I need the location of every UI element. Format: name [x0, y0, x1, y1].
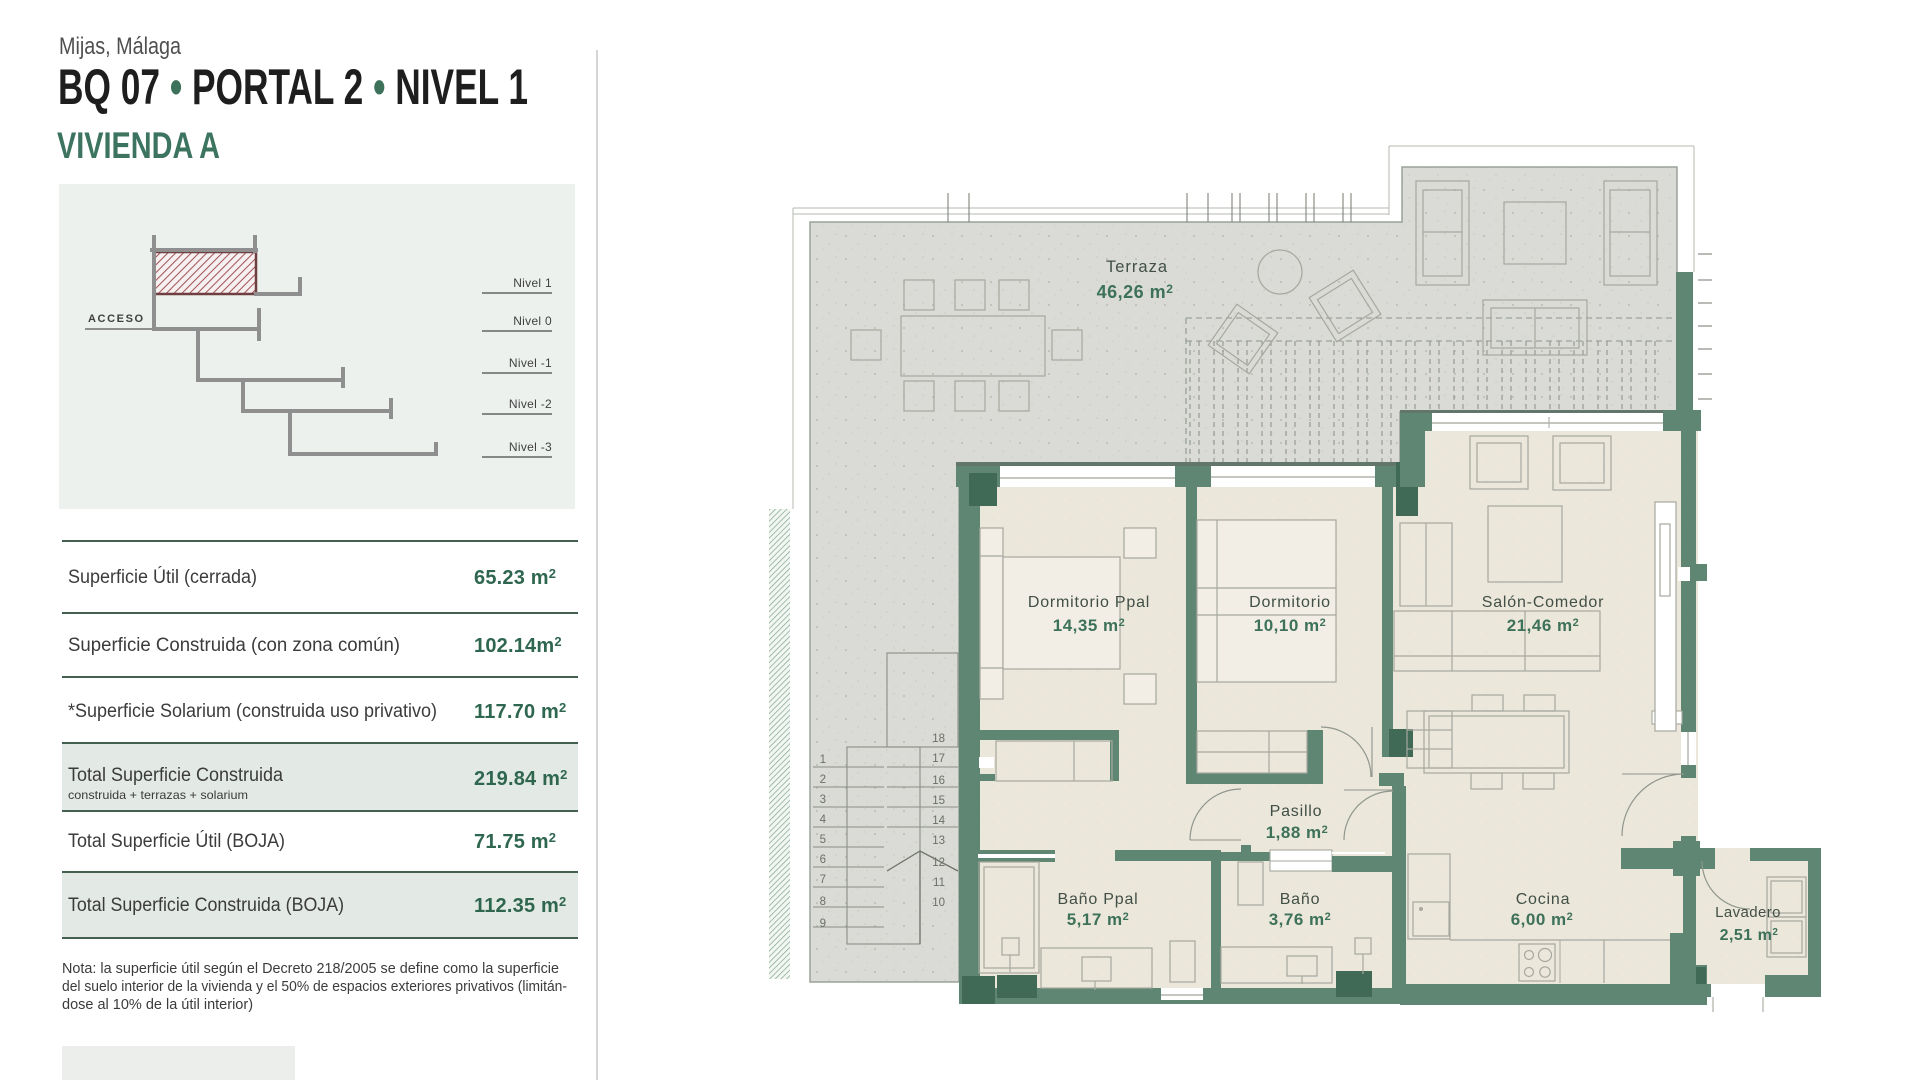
svg-text:12: 12	[932, 857, 945, 869]
svg-text:Total Superficie Construida (B: Total Superficie Construida (BOJA)	[68, 895, 344, 916]
svg-text:Nivel -3: Nivel -3	[509, 440, 552, 454]
svg-text:15: 15	[932, 795, 945, 807]
svg-text:6,00 m2: 6,00 m2	[1511, 910, 1574, 929]
svg-text:Terraza: Terraza	[1106, 258, 1168, 276]
svg-text:6: 6	[820, 854, 826, 866]
svg-text:3,76 m2: 3,76 m2	[1269, 910, 1332, 929]
svg-text:1: 1	[820, 754, 826, 766]
svg-text:21,46 m2: 21,46 m2	[1507, 616, 1580, 635]
svg-text:Nota: la superficie útil según: Nota: la superficie útil según el Decret…	[62, 961, 559, 977]
svg-text:8: 8	[820, 896, 826, 908]
svg-text:BQ 07 • PORTAL 2 • NIVEL 1: BQ 07 • PORTAL 2 • NIVEL 1	[58, 59, 528, 115]
svg-text:13: 13	[932, 835, 945, 847]
svg-text:Baño: Baño	[1280, 891, 1321, 908]
svg-text:9: 9	[820, 918, 826, 930]
svg-text:Dormitorio Ppal: Dormitorio Ppal	[1028, 594, 1150, 611]
svg-text:Salón-Comedor: Salón-Comedor	[1482, 594, 1604, 611]
svg-text:1,88 m2: 1,88 m2	[1266, 823, 1329, 842]
svg-text:5: 5	[820, 834, 826, 846]
svg-text:ACCESO: ACCESO	[88, 313, 145, 325]
svg-text:Total Superficie Construida: Total Superficie Construida	[68, 765, 283, 786]
svg-text:71.75 m2: 71.75 m2	[474, 830, 556, 853]
svg-text:7: 7	[820, 874, 826, 886]
svg-text:219.84 m2: 219.84 m2	[474, 767, 568, 790]
svg-text:3: 3	[820, 794, 826, 806]
svg-text:construida + terrazas + solari: construida + terrazas + solarium	[68, 788, 248, 802]
svg-text:del suelo interior de la vivie: del suelo interior de la vivienda y el 5…	[62, 979, 567, 995]
svg-text:Nivel -2: Nivel -2	[509, 397, 552, 411]
svg-text:46,26 m2: 46,26 m2	[1097, 282, 1174, 302]
svg-text:Nivel -1: Nivel -1	[509, 356, 552, 370]
svg-text:18: 18	[932, 733, 945, 745]
svg-text:VIVIENDA A: VIVIENDA A	[57, 125, 220, 166]
svg-text:Nivel 0: Nivel 0	[513, 314, 552, 328]
svg-text:2: 2	[820, 774, 826, 786]
svg-text:5,17 m2: 5,17 m2	[1067, 910, 1130, 929]
svg-text:Pasillo: Pasillo	[1270, 803, 1323, 820]
svg-text:dose al 10% de la útil interio: dose al 10% de la útil interior)	[62, 997, 253, 1013]
svg-text:4: 4	[820, 814, 827, 826]
svg-text:Superficie Construida (con zon: Superficie Construida (con zona común)	[68, 635, 400, 656]
svg-text:102.14m2: 102.14m2	[474, 634, 562, 657]
svg-text:117.70 m2: 117.70 m2	[474, 700, 566, 723]
svg-text:Baño Ppal: Baño Ppal	[1057, 891, 1138, 908]
svg-text:14,35 m2: 14,35 m2	[1053, 616, 1126, 635]
svg-text:Dormitorio: Dormitorio	[1249, 594, 1331, 611]
svg-text:16: 16	[932, 775, 945, 787]
svg-text:Cocina: Cocina	[1516, 891, 1571, 908]
svg-text:Nivel 1: Nivel 1	[513, 276, 552, 290]
svg-text:112.35 m2: 112.35 m2	[474, 894, 566, 917]
svg-text:14: 14	[932, 815, 945, 827]
svg-text:Superficie Útil (cerrada): Superficie Útil (cerrada)	[68, 566, 257, 588]
svg-text:11: 11	[933, 877, 945, 889]
svg-text:2,51 m2: 2,51 m2	[1720, 927, 1779, 944]
svg-text:10,10 m2: 10,10 m2	[1254, 616, 1327, 635]
svg-text:Lavadero: Lavadero	[1715, 904, 1781, 921]
svg-text:*Superficie Solarium (construi: *Superficie Solarium (construida uso pri…	[68, 701, 437, 722]
svg-text:Total Superficie Útil (BOJA): Total Superficie Útil (BOJA)	[68, 830, 285, 852]
svg-text:65.23 m2: 65.23 m2	[474, 566, 556, 589]
svg-text:17: 17	[932, 753, 945, 765]
svg-text:Mijas, Málaga: Mijas, Málaga	[59, 33, 182, 60]
svg-text:10: 10	[932, 897, 945, 909]
